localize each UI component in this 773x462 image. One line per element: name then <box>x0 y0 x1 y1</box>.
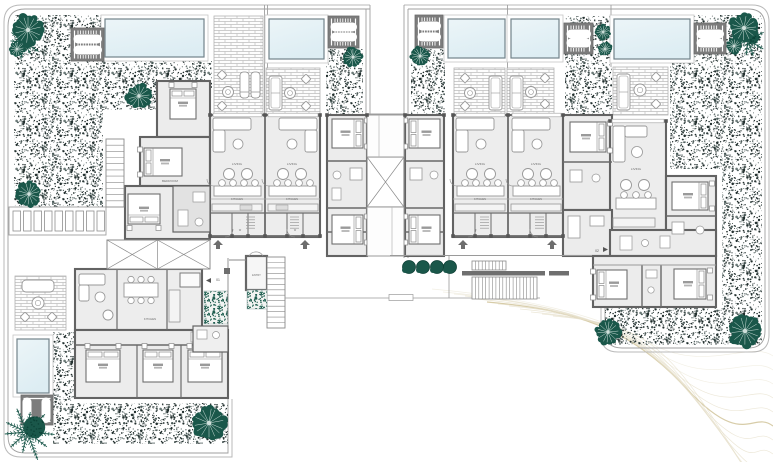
svg-text:KITCHEN: KITCHEN <box>144 317 156 321</box>
svg-text:KITCHEN: KITCHEN <box>530 197 542 201</box>
svg-text:LIVING: LIVING <box>232 162 243 166</box>
svg-text:KITCHEN: KITCHEN <box>474 197 486 201</box>
svg-text:KITCHEN: KITCHEN <box>231 197 243 201</box>
svg-text:BEDROOM: BEDROOM <box>162 179 178 183</box>
svg-text:LIVING: LIVING <box>287 162 298 166</box>
svg-text:01: 01 <box>216 278 220 282</box>
svg-text:LIVING: LIVING <box>475 162 486 166</box>
svg-text:KITCHEN: KITCHEN <box>286 197 298 201</box>
svg-text:LIVING: LIVING <box>531 162 542 166</box>
svg-text:02: 02 <box>595 249 599 253</box>
svg-text:ENTRY: ENTRY <box>252 273 261 277</box>
svg-text:LIVING: LIVING <box>631 167 642 171</box>
